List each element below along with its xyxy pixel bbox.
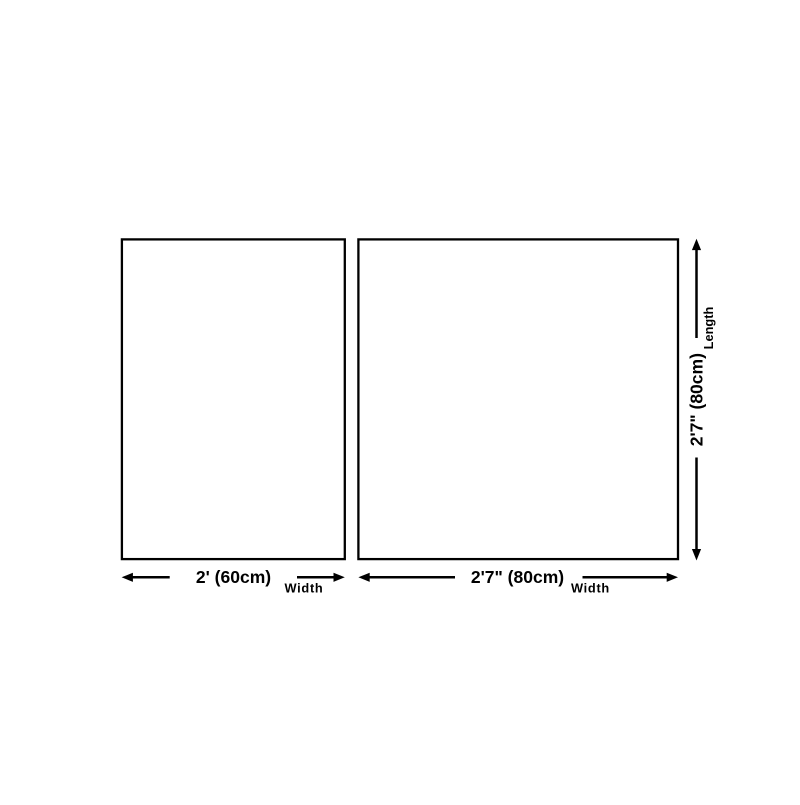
svg-text:Length: Length [701,306,716,349]
svg-text:2'7" (80cm): 2'7" (80cm) [471,567,564,587]
svg-text:Width: Width [285,581,324,596]
svg-text:2'7" (80cm): 2'7" (80cm) [686,353,706,446]
svg-text:2' (60cm): 2' (60cm) [196,567,271,587]
svg-text:Width: Width [571,581,610,596]
